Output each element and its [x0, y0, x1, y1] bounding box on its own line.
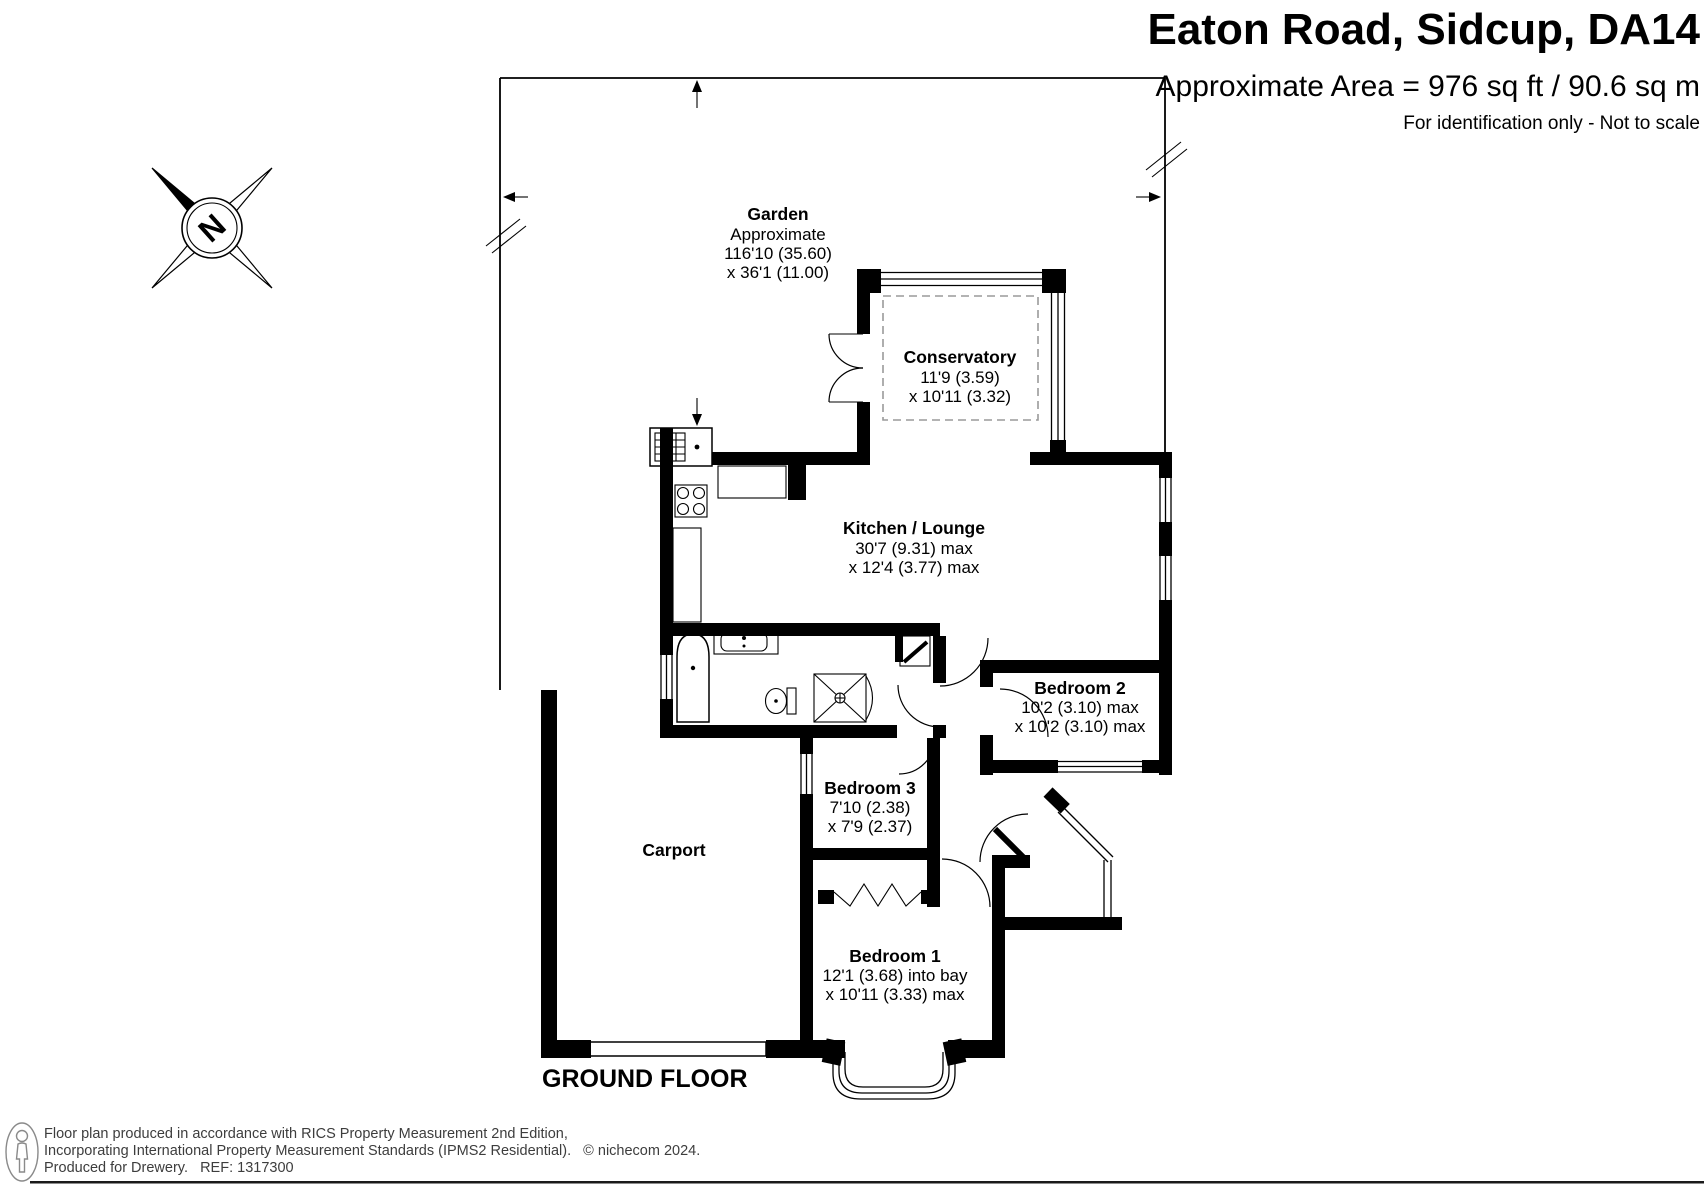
garden-dim2: x 36'1 (11.00): [727, 263, 829, 282]
conservatory-dim1: 11'9 (3.59): [920, 368, 999, 387]
footer-line3: Produced for Drewery. REF: 1317300: [44, 1160, 294, 1176]
ground-floor-label: GROUND FLOOR: [542, 1065, 748, 1093]
bedroom2-dim1: 10'2 (3.10) max: [1021, 698, 1139, 717]
bedroom2-dim2: x 10'2 (3.10) max: [1015, 717, 1146, 736]
bedroom1-door: [942, 859, 990, 907]
page-title: Eaton Road, Sidcup, DA14: [1147, 5, 1700, 54]
kitchen-dim2: x 12'4 (3.77) max: [849, 558, 980, 577]
bedroom3-dim1: 7'10 (2.38): [830, 798, 911, 817]
kitchen-name: Kitchen / Lounge: [843, 518, 985, 538]
bathroom-door: [898, 685, 940, 727]
bedroom3-dim2: x 7'9 (2.37): [828, 817, 913, 836]
bedroom2-name: Bedroom 2: [1034, 678, 1126, 698]
kitchen-wall-stub: [788, 465, 806, 500]
bathtub-icon: [677, 634, 709, 722]
conservatory-name: Conservatory: [904, 347, 1017, 367]
garden-approx: Approximate: [730, 225, 825, 244]
kitchen-sink-unit: [650, 428, 712, 466]
kitchen-counter-side: [673, 528, 701, 622]
toilet-icon: [766, 688, 797, 714]
footer: Floor plan produced in accordance with R…: [6, 1123, 1704, 1184]
footer-line1: Floor plan produced in accordance with R…: [44, 1126, 568, 1142]
approximate-area: Approximate Area = 976 sq ft / 90.6 sq m: [1156, 70, 1700, 103]
garden-boundary: [486, 78, 1187, 690]
bedroom1-name: Bedroom 1: [849, 946, 941, 966]
garden-label: Garden Approximate 116'10 (35.60) x 36'1…: [724, 204, 832, 282]
bedroom3-name: Bedroom 3: [824, 778, 916, 798]
kitchen-dim1: 30'7 (9.31) max: [855, 539, 973, 558]
bedroom1-dim2: x 10'11 (3.33) max: [826, 985, 965, 1004]
disclaimer: For identification only - Not to scale: [1403, 113, 1700, 134]
french-doors: [829, 334, 863, 402]
shower-icon: [814, 674, 873, 722]
bay-window: [822, 1038, 967, 1099]
footer-line2: Incorporating International Property Mea…: [44, 1143, 700, 1159]
measurement-arrows: [503, 80, 1161, 426]
room-labels: Conservatory 11'9 (3.59) x 10'11 (3.32) …: [642, 347, 1145, 1004]
hall-cupboard: [895, 636, 930, 666]
floorplan-canvas: Eaton Road, Sidcup, DA14 Approximate Are…: [0, 0, 1704, 1184]
entrance-porch: [1044, 787, 1113, 917]
carport-name: Carport: [642, 840, 705, 860]
garden-dim1: 116'10 (35.60): [724, 244, 832, 263]
conservatory-dim2: x 10'11 (3.32): [909, 387, 1011, 406]
compass-rose-icon: N: [152, 168, 272, 288]
bedroom1-dim1: 12'1 (3.68) into bay: [822, 966, 968, 985]
floorplan-page: Eaton Road, Sidcup, DA14 Approximate Are…: [0, 0, 1704, 1184]
footer-rule: [30, 1181, 1704, 1184]
kitchen-counter-top: [718, 466, 786, 498]
stove-icon: [675, 485, 707, 517]
person-logo-icon: [6, 1123, 38, 1181]
bathroom-fixtures: [677, 630, 873, 722]
garden-name: Garden: [747, 204, 808, 224]
